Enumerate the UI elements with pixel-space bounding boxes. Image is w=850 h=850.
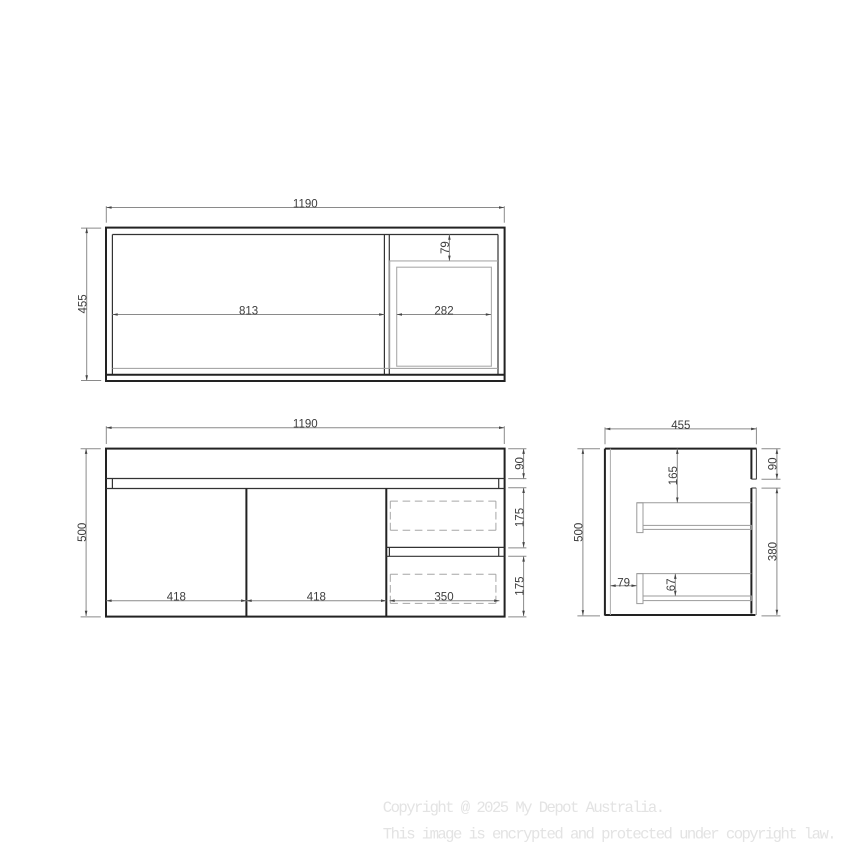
svg-text:1190: 1190 [293, 199, 318, 211]
svg-text:1190: 1190 [293, 419, 318, 431]
svg-text:79: 79 [440, 241, 452, 254]
svg-text:418: 418 [307, 592, 326, 604]
svg-text:67: 67 [666, 578, 678, 591]
svg-text:Copyright @ 2025 My Depot Aust: Copyright @ 2025 My Depot Australia. [383, 799, 664, 817]
svg-text:This image is encrypted and pr: This image is encrypted and protected un… [383, 826, 835, 844]
svg-text:813: 813 [239, 306, 258, 318]
svg-text:500: 500 [77, 523, 89, 542]
svg-text:418: 418 [167, 592, 186, 604]
svg-text:90: 90 [514, 457, 526, 470]
svg-text:380: 380 [768, 542, 780, 561]
svg-text:282: 282 [434, 306, 453, 318]
svg-text:455: 455 [78, 294, 90, 313]
svg-text:175: 175 [514, 577, 526, 596]
svg-text:455: 455 [671, 420, 690, 432]
svg-text:350: 350 [434, 592, 453, 604]
svg-text:165: 165 [668, 466, 680, 485]
svg-text:175: 175 [514, 508, 526, 527]
svg-text:79: 79 [617, 578, 630, 590]
svg-text:90: 90 [768, 458, 780, 471]
svg-text:500: 500 [574, 523, 586, 542]
